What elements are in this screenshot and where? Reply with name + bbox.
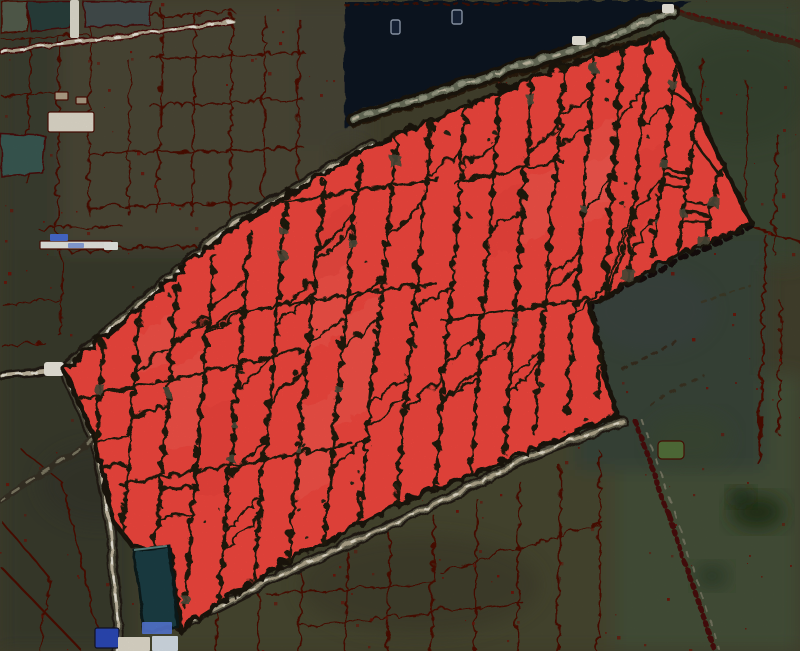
satellite-image-viewport — [0, 0, 800, 651]
grain-overlay — [0, 0, 800, 651]
satellite-map-canvas — [0, 0, 800, 651]
